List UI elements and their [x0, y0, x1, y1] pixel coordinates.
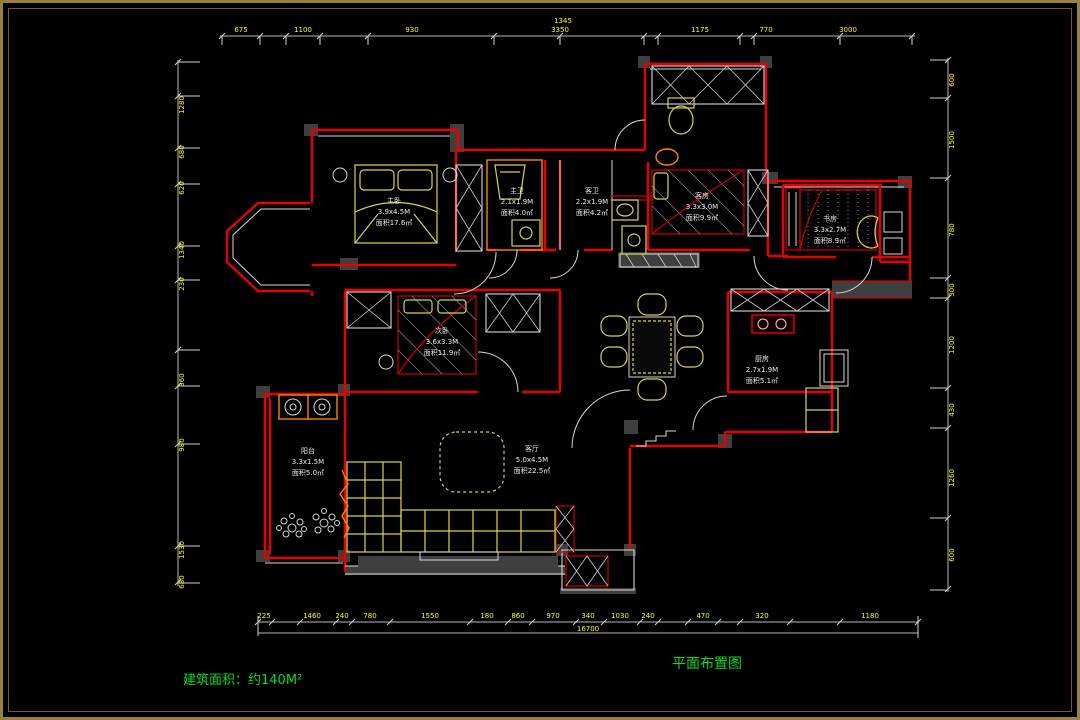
- dining-chair: [638, 294, 666, 315]
- study-closet: [786, 188, 800, 250]
- room-dims: 2.1x1.9M: [501, 198, 533, 206]
- door-arc: [615, 120, 645, 150]
- closet-hatch-bedroom2-left: [347, 292, 391, 328]
- balcony-plants: [277, 509, 340, 538]
- room-name: 客厅: [525, 444, 539, 453]
- room-area: 面积22.5㎡: [514, 466, 551, 475]
- entry-hatch-box: [566, 556, 608, 586]
- room-area: 面积8.9㎡: [814, 236, 846, 245]
- right-dimension-chain: 600 1500 780 300 1200 430 1260 600: [930, 57, 956, 592]
- dim-value: 430: [948, 403, 956, 416]
- dim-value: 675: [234, 26, 247, 34]
- dim-value: 1530: [178, 541, 186, 559]
- bath2-fixtures: [612, 200, 646, 254]
- room-area: 面积4.0㎡: [501, 208, 533, 217]
- dim-value: 780: [948, 223, 956, 236]
- dim-value: 980: [178, 438, 186, 451]
- room-area: 面积9.9㎡: [686, 213, 718, 222]
- dining-chair: [677, 347, 703, 367]
- left-dimension-chain: 1280 680 620 1340 230 360 980 1530 680: [175, 59, 200, 589]
- dim-value: 230: [178, 277, 186, 290]
- room-name: 主卧: [387, 196, 401, 205]
- room-name: 阳台: [301, 446, 315, 455]
- closet-hatch-bedroom2-right: [486, 294, 540, 332]
- door-arc: [454, 252, 496, 294]
- room-name: 主卫: [510, 186, 524, 195]
- dim-value: 770: [759, 26, 772, 34]
- dim-value: 600: [948, 73, 956, 86]
- floor-plan-canvas[interactable]: 675 1100 930 3350 1175 770 3000 1345 225…: [0, 0, 1080, 720]
- room-dims: 3.6x3.3M: [426, 338, 458, 346]
- dim-value: 930: [405, 26, 418, 34]
- room-area: 面积5.0㎡: [292, 468, 324, 477]
- ensuite-fixtures: [857, 216, 878, 248]
- room-name: 客房: [695, 191, 709, 200]
- dim-value: 1030: [611, 612, 629, 620]
- dim-value: 240: [641, 612, 654, 620]
- room-dims: 3.3x1.5M: [292, 458, 324, 466]
- dim-value: 1340: [178, 241, 186, 259]
- guest-bed: [652, 170, 744, 234]
- door-arcs: [454, 120, 872, 448]
- dim-value: 1550: [421, 612, 439, 620]
- thick-wall-blocks: [256, 56, 912, 594]
- bedside-lamp-icon: [333, 168, 347, 182]
- dim-value: 780: [363, 612, 376, 620]
- exterior-walls: [227, 64, 910, 590]
- drawing-title: 平面布置图: [672, 656, 742, 672]
- dim-value: 240: [335, 612, 348, 620]
- wardrobe-hatch-master: [456, 165, 482, 251]
- toilet-icon: [622, 226, 646, 254]
- dim-value: 300: [948, 283, 956, 296]
- dim-value: 360: [178, 373, 186, 386]
- room-area: 面积17.6㎡: [376, 218, 413, 227]
- dim-total: 1345: [554, 17, 572, 25]
- top-dimension-chain: 675 1100 930 3350 1175 770 3000 1345: [219, 17, 915, 45]
- room-name: 书房: [823, 214, 837, 223]
- room-dims: 3.3x2.7M: [814, 226, 846, 234]
- room-dims: 2.2x1.9M: [576, 198, 608, 206]
- room-name: 厨房: [755, 354, 769, 363]
- dim-value: 3350: [551, 26, 569, 34]
- cad-viewport: 675 1100 930 3350 1175 770 3000 1345 225…: [0, 0, 1080, 720]
- dim-value: 180: [480, 612, 493, 620]
- drawing-frame: [2, 2, 1079, 719]
- washbasin-icon: [612, 200, 638, 220]
- interior-walls: [312, 150, 912, 446]
- room-area: 面积4.2㎡: [576, 208, 608, 217]
- room-dims: 5.0x4.5M: [516, 456, 548, 464]
- door-arc: [550, 250, 578, 278]
- dim-value: 1280: [178, 96, 186, 114]
- dining-chair: [677, 316, 703, 336]
- dim-value: 680: [178, 145, 186, 158]
- washbasin-icon: [656, 149, 678, 165]
- tv-cabinet: [358, 552, 558, 567]
- dining-chair: [601, 347, 627, 367]
- door-arc: [478, 352, 518, 392]
- dim-value: 1500: [948, 131, 956, 149]
- dim-value: 680: [178, 575, 186, 588]
- dim-value: 1180: [861, 612, 879, 620]
- dim-value: 970: [546, 612, 559, 620]
- dining-set: [601, 294, 703, 400]
- top-bath-fixtures: [656, 98, 694, 165]
- building-area-text: 建筑面积：约140M²: [183, 672, 302, 688]
- dining-chair: [638, 379, 666, 400]
- rug: [440, 432, 504, 492]
- counter: [820, 350, 848, 386]
- dim-value: 1460: [303, 612, 321, 620]
- door-arc: [572, 390, 630, 448]
- dim-value: 860: [511, 612, 524, 620]
- room-name: 客卫: [585, 186, 599, 195]
- dim-value: 320: [755, 612, 768, 620]
- washing-machines: [279, 395, 337, 419]
- bedside-lamp-icon: [379, 355, 393, 369]
- dim-value: 225: [257, 612, 270, 620]
- room-dims: 2.7x1.9M: [746, 366, 778, 374]
- dim-value: 600: [948, 548, 956, 561]
- door-arc: [693, 396, 727, 430]
- plant-icon: [277, 514, 307, 538]
- sofa-sectional: [340, 462, 555, 552]
- dim-value: 1175: [691, 26, 709, 34]
- toilet-icon: [669, 106, 693, 134]
- dim-value: 620: [178, 181, 186, 194]
- dim-value: 340: [581, 612, 594, 620]
- dim-value: 470: [696, 612, 709, 620]
- room-dims: 3.3x3.0M: [686, 203, 718, 211]
- room-area: 面积5.1㎡: [746, 376, 778, 385]
- door-arc: [489, 250, 517, 278]
- room-dims: 3.9x4.5M: [378, 208, 410, 216]
- toilet-icon: [512, 220, 540, 246]
- room-area: 面积11.9㎡: [424, 348, 461, 357]
- dim-value: 1260: [948, 469, 956, 487]
- plant-icon: [313, 509, 340, 534]
- dim-value: 1200: [948, 336, 956, 354]
- title-block: 建筑面积：约140M² 平面布置图: [183, 656, 742, 688]
- toilet-icon: [857, 216, 878, 248]
- dining-chair: [601, 316, 627, 336]
- room-name: 次卧: [435, 326, 449, 335]
- door-arc: [754, 256, 788, 290]
- dim-value: 1100: [294, 26, 312, 34]
- dim-total: 16700: [577, 625, 599, 633]
- bottom-dimension-chain: 225 1460 240 780 1550 180 860 970 340 10…: [255, 612, 921, 638]
- dim-value: 3000: [839, 26, 857, 34]
- bedroom2-bed: [379, 296, 476, 374]
